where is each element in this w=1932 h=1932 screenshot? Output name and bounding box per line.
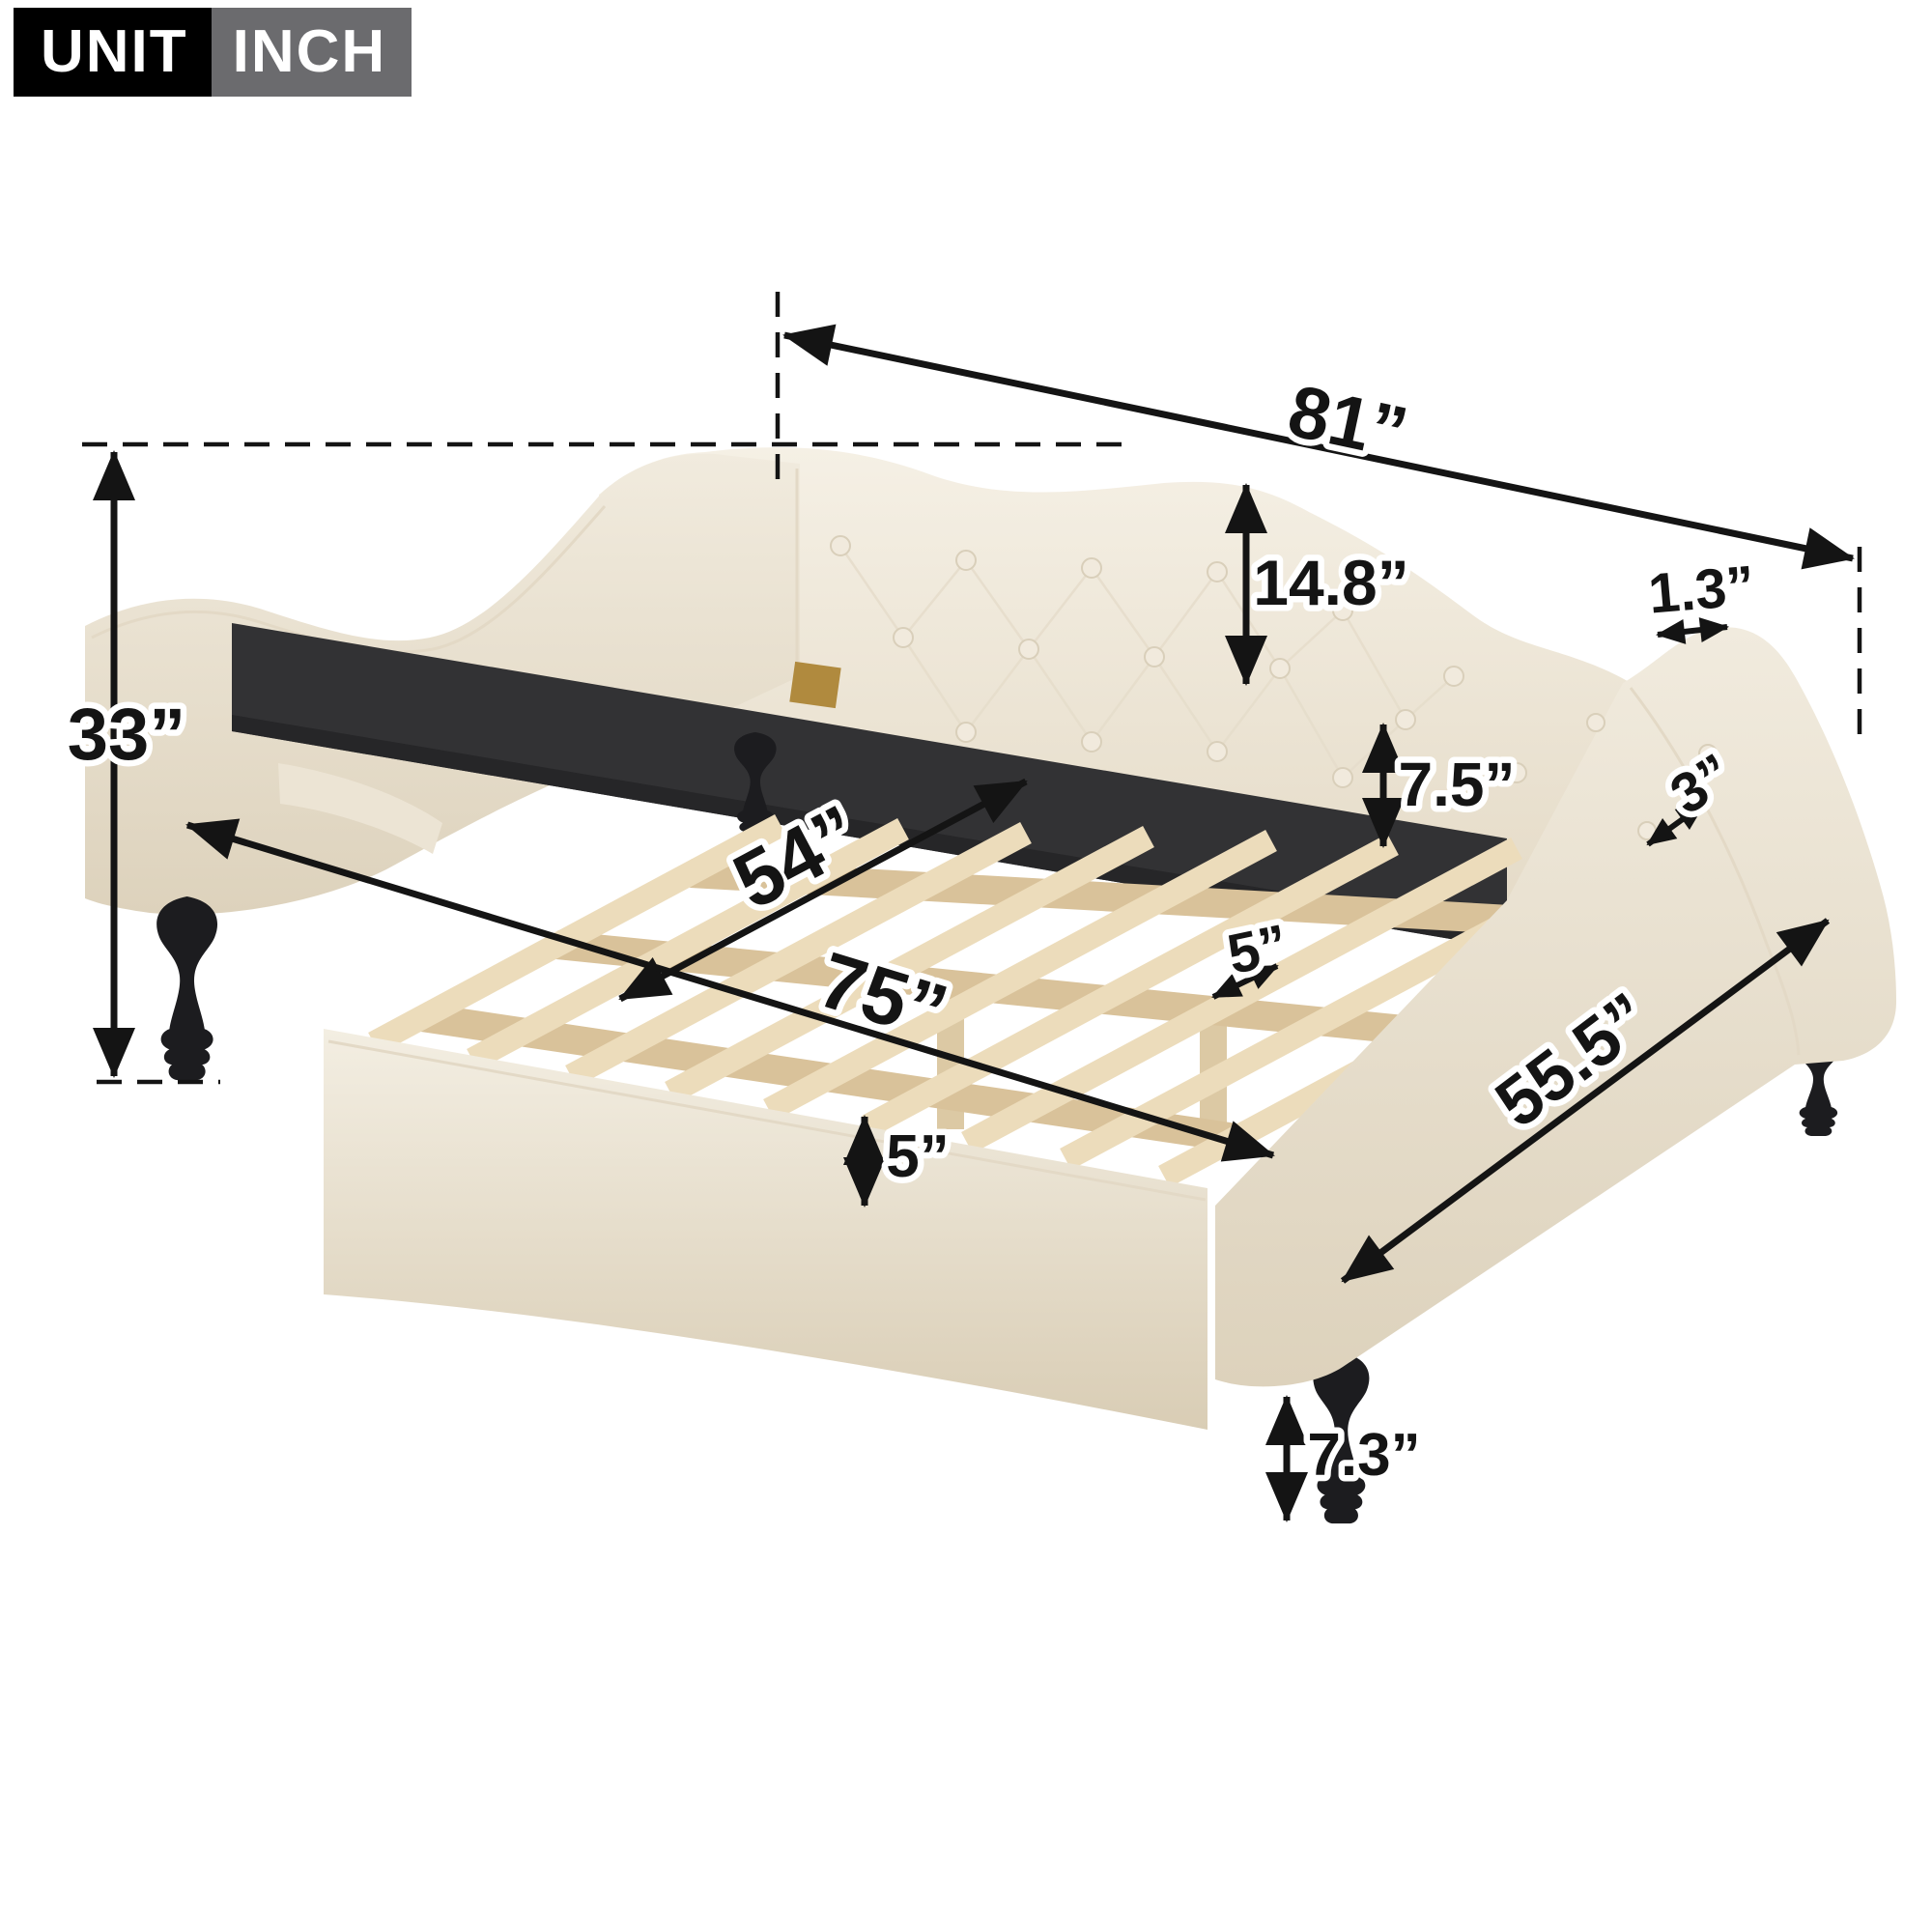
tuft-button (1207, 562, 1227, 582)
tuft-button (956, 723, 976, 742)
unit-badge: UNIT INCH (14, 8, 412, 97)
tuft-button (956, 551, 976, 570)
label-front-rail-height: 5” (886, 1123, 949, 1190)
tuft-button (1587, 714, 1605, 731)
unit-badge-label: UNIT (14, 8, 212, 97)
label-back-top-edge: 1.3” (1646, 554, 1757, 625)
label-leg-height: 7.3” (1307, 1422, 1420, 1489)
back-left-leg (156, 896, 217, 1080)
tuft-button (1145, 647, 1164, 667)
daybed-illustration: 81” 33” 14.8” 1.3” 7.5” 3” 54” 75” 5” 5”… (0, 0, 1932, 1932)
tuft-button (1207, 742, 1227, 761)
daybed-dimension-diagram: UNIT INCH (0, 0, 1932, 1932)
corner-bracket (789, 662, 840, 708)
label-overall-length: 81” (1282, 370, 1415, 475)
label-overall-height: 33” (68, 694, 186, 776)
tuft-button (1638, 822, 1656, 839)
unit-badge-value: INCH (212, 8, 412, 97)
tuft-button (1333, 768, 1352, 787)
tuft-button (894, 628, 913, 647)
tuft-button (1019, 639, 1038, 659)
tuft-button (1444, 667, 1463, 686)
tuft-button (1082, 558, 1101, 578)
daybed (85, 447, 1896, 1523)
tuft-button (1082, 732, 1101, 752)
label-backrest-height: 14.8” (1253, 547, 1408, 618)
tuft-button (831, 536, 850, 555)
tuft-button (1396, 710, 1415, 729)
label-slat-width: 5” (1222, 913, 1293, 986)
label-slat-to-rail: 7.5” (1399, 750, 1516, 819)
tuft-button (1270, 659, 1290, 678)
